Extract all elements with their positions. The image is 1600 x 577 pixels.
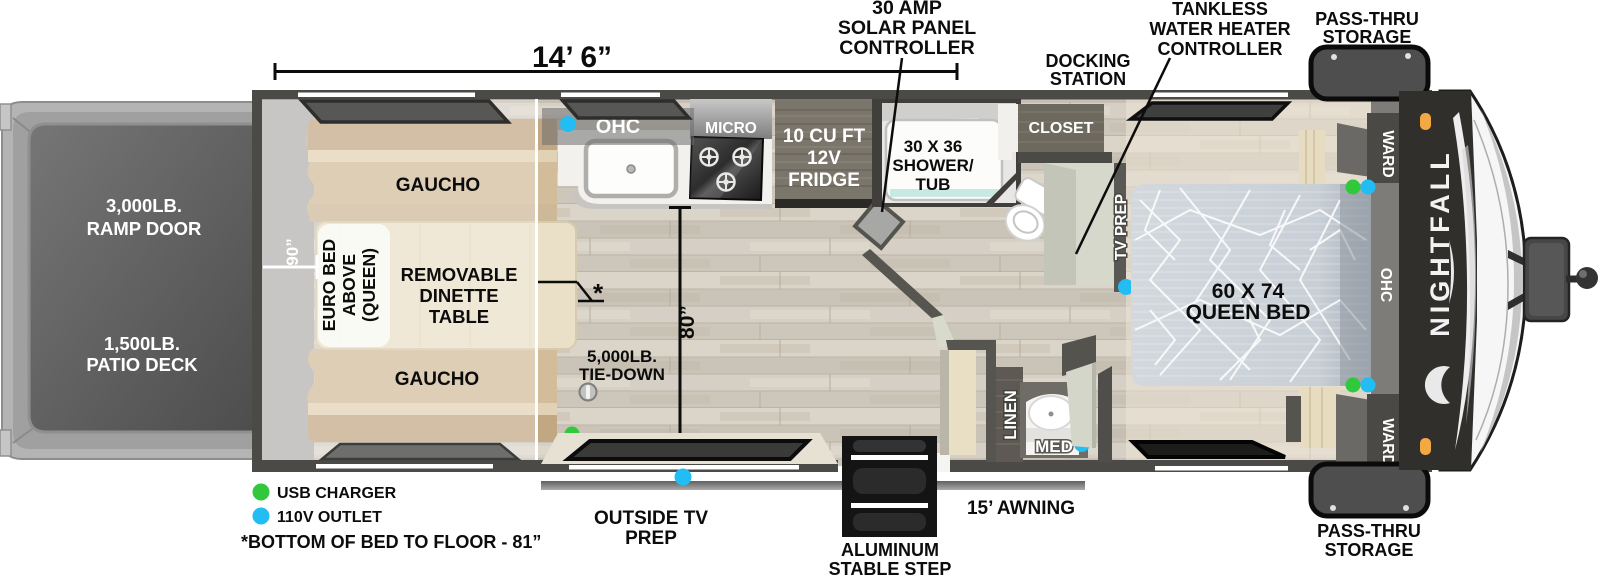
svg-text:DINETTE: DINETTE (419, 285, 498, 306)
svg-text:10 CU FT: 10 CU FT (783, 126, 866, 147)
svg-text:FRIDGE: FRIDGE (788, 170, 860, 191)
svg-text:QUEEN BED: QUEEN BED (1186, 301, 1311, 324)
svg-text:SHOWER/: SHOWER/ (892, 156, 974, 175)
svg-text:ALUMINUM: ALUMINUM (841, 540, 939, 560)
svg-text:3,000LB.: 3,000LB. (106, 195, 182, 216)
svg-text:PATIO DECK: PATIO DECK (86, 354, 198, 375)
svg-text:CONTROLLER: CONTROLLER (839, 37, 974, 59)
svg-text:STORAGE: STORAGE (1325, 540, 1414, 560)
svg-text:5,000LB.: 5,000LB. (587, 347, 657, 366)
svg-text:WARD: WARD (1379, 418, 1396, 465)
svg-text:RAMP DOOR: RAMP DOOR (87, 218, 202, 239)
svg-text:WARD: WARD (1379, 130, 1396, 177)
svg-text:EURO BED: EURO BED (319, 239, 339, 331)
svg-text:PASS-THRU: PASS-THRU (1315, 9, 1419, 29)
svg-text:MED: MED (1035, 437, 1073, 456)
svg-text:DOCKING: DOCKING (1046, 51, 1131, 71)
svg-text:TANKLESS: TANKLESS (1172, 0, 1268, 19)
svg-text:USB CHARGER: USB CHARGER (277, 485, 397, 502)
svg-text:STORAGE: STORAGE (1323, 27, 1412, 47)
svg-text:TIE-DOWN: TIE-DOWN (579, 365, 665, 384)
svg-text:OUTSIDE TV: OUTSIDE TV (594, 508, 708, 529)
svg-text:REMOVABLE: REMOVABLE (401, 264, 518, 285)
svg-text:PREP: PREP (625, 528, 677, 549)
svg-text:SOLAR PANEL: SOLAR PANEL (838, 17, 976, 39)
svg-text:14’ 6”: 14’ 6” (532, 41, 612, 74)
svg-text:TV PREP: TV PREP (1113, 194, 1130, 260)
svg-text:(QUEEN): (QUEEN) (359, 248, 379, 322)
svg-text:1,500LB.: 1,500LB. (104, 333, 180, 354)
svg-text:NIGHTFALL: NIGHTFALL (1425, 149, 1455, 336)
svg-text:30 X 36: 30 X 36 (904, 137, 963, 156)
svg-text:12V: 12V (807, 148, 841, 169)
svg-text:60 X 74: 60 X 74 (1212, 280, 1285, 303)
svg-text:*BOTTOM OF BED TO FLOOR - 81”: *BOTTOM OF BED TO FLOOR - 81” (241, 532, 541, 552)
svg-text:110V OUTLET: 110V OUTLET (277, 509, 382, 526)
svg-text:15’ AWNING: 15’ AWNING (967, 498, 1075, 519)
svg-text:LINEN: LINEN (1002, 390, 1020, 440)
svg-text:OHC: OHC (1377, 268, 1394, 302)
svg-text:GAUCHO: GAUCHO (395, 369, 479, 390)
svg-text:CONTROLLER: CONTROLLER (1158, 39, 1283, 59)
svg-text:STABLE STEP: STABLE STEP (829, 559, 952, 577)
svg-text:WATER HEATER: WATER HEATER (1149, 19, 1290, 39)
svg-text:TABLE: TABLE (429, 306, 489, 327)
svg-text:TUB: TUB (916, 175, 951, 194)
svg-text:MICRO: MICRO (705, 120, 757, 137)
svg-text:CLOSET: CLOSET (1029, 120, 1094, 137)
svg-text:STATION: STATION (1050, 69, 1126, 89)
svg-text:GAUCHO: GAUCHO (396, 175, 480, 196)
svg-text:ABOVE: ABOVE (339, 254, 359, 316)
svg-text:*: * (593, 278, 604, 308)
svg-text:80”: 80” (676, 305, 699, 339)
svg-text:PASS-THRU: PASS-THRU (1317, 521, 1421, 541)
svg-text:90”: 90” (283, 238, 302, 265)
